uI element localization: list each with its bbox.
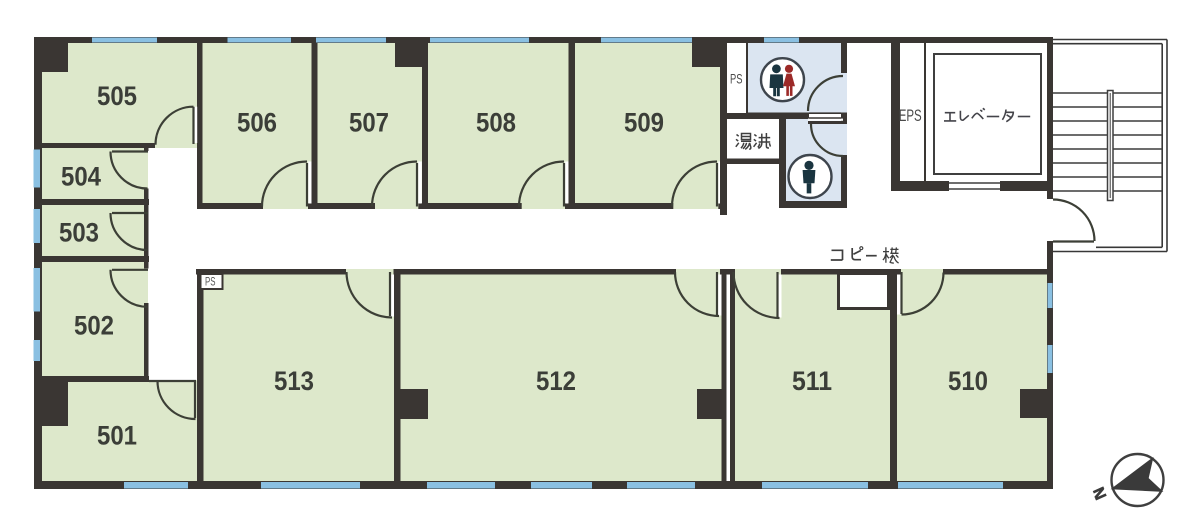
svg-text:507: 507 [349, 108, 389, 138]
svg-text:501: 501 [97, 421, 137, 451]
svg-text:509: 509 [624, 108, 664, 138]
svg-text:512: 512 [536, 366, 576, 396]
svg-text:508: 508 [476, 108, 516, 138]
svg-text:503: 503 [59, 218, 99, 248]
svg-text:513: 513 [274, 366, 314, 396]
svg-text:PS: PS [730, 70, 743, 86]
svg-text:504: 504 [61, 162, 101, 192]
svg-text:505: 505 [97, 81, 137, 111]
svg-text:510: 510 [948, 366, 988, 396]
svg-text:502: 502 [74, 311, 114, 341]
svg-text:506: 506 [237, 108, 277, 138]
svg-text:511: 511 [792, 366, 832, 396]
svg-text:PS: PS [205, 275, 216, 289]
svg-text:EPS: EPS [899, 106, 922, 125]
